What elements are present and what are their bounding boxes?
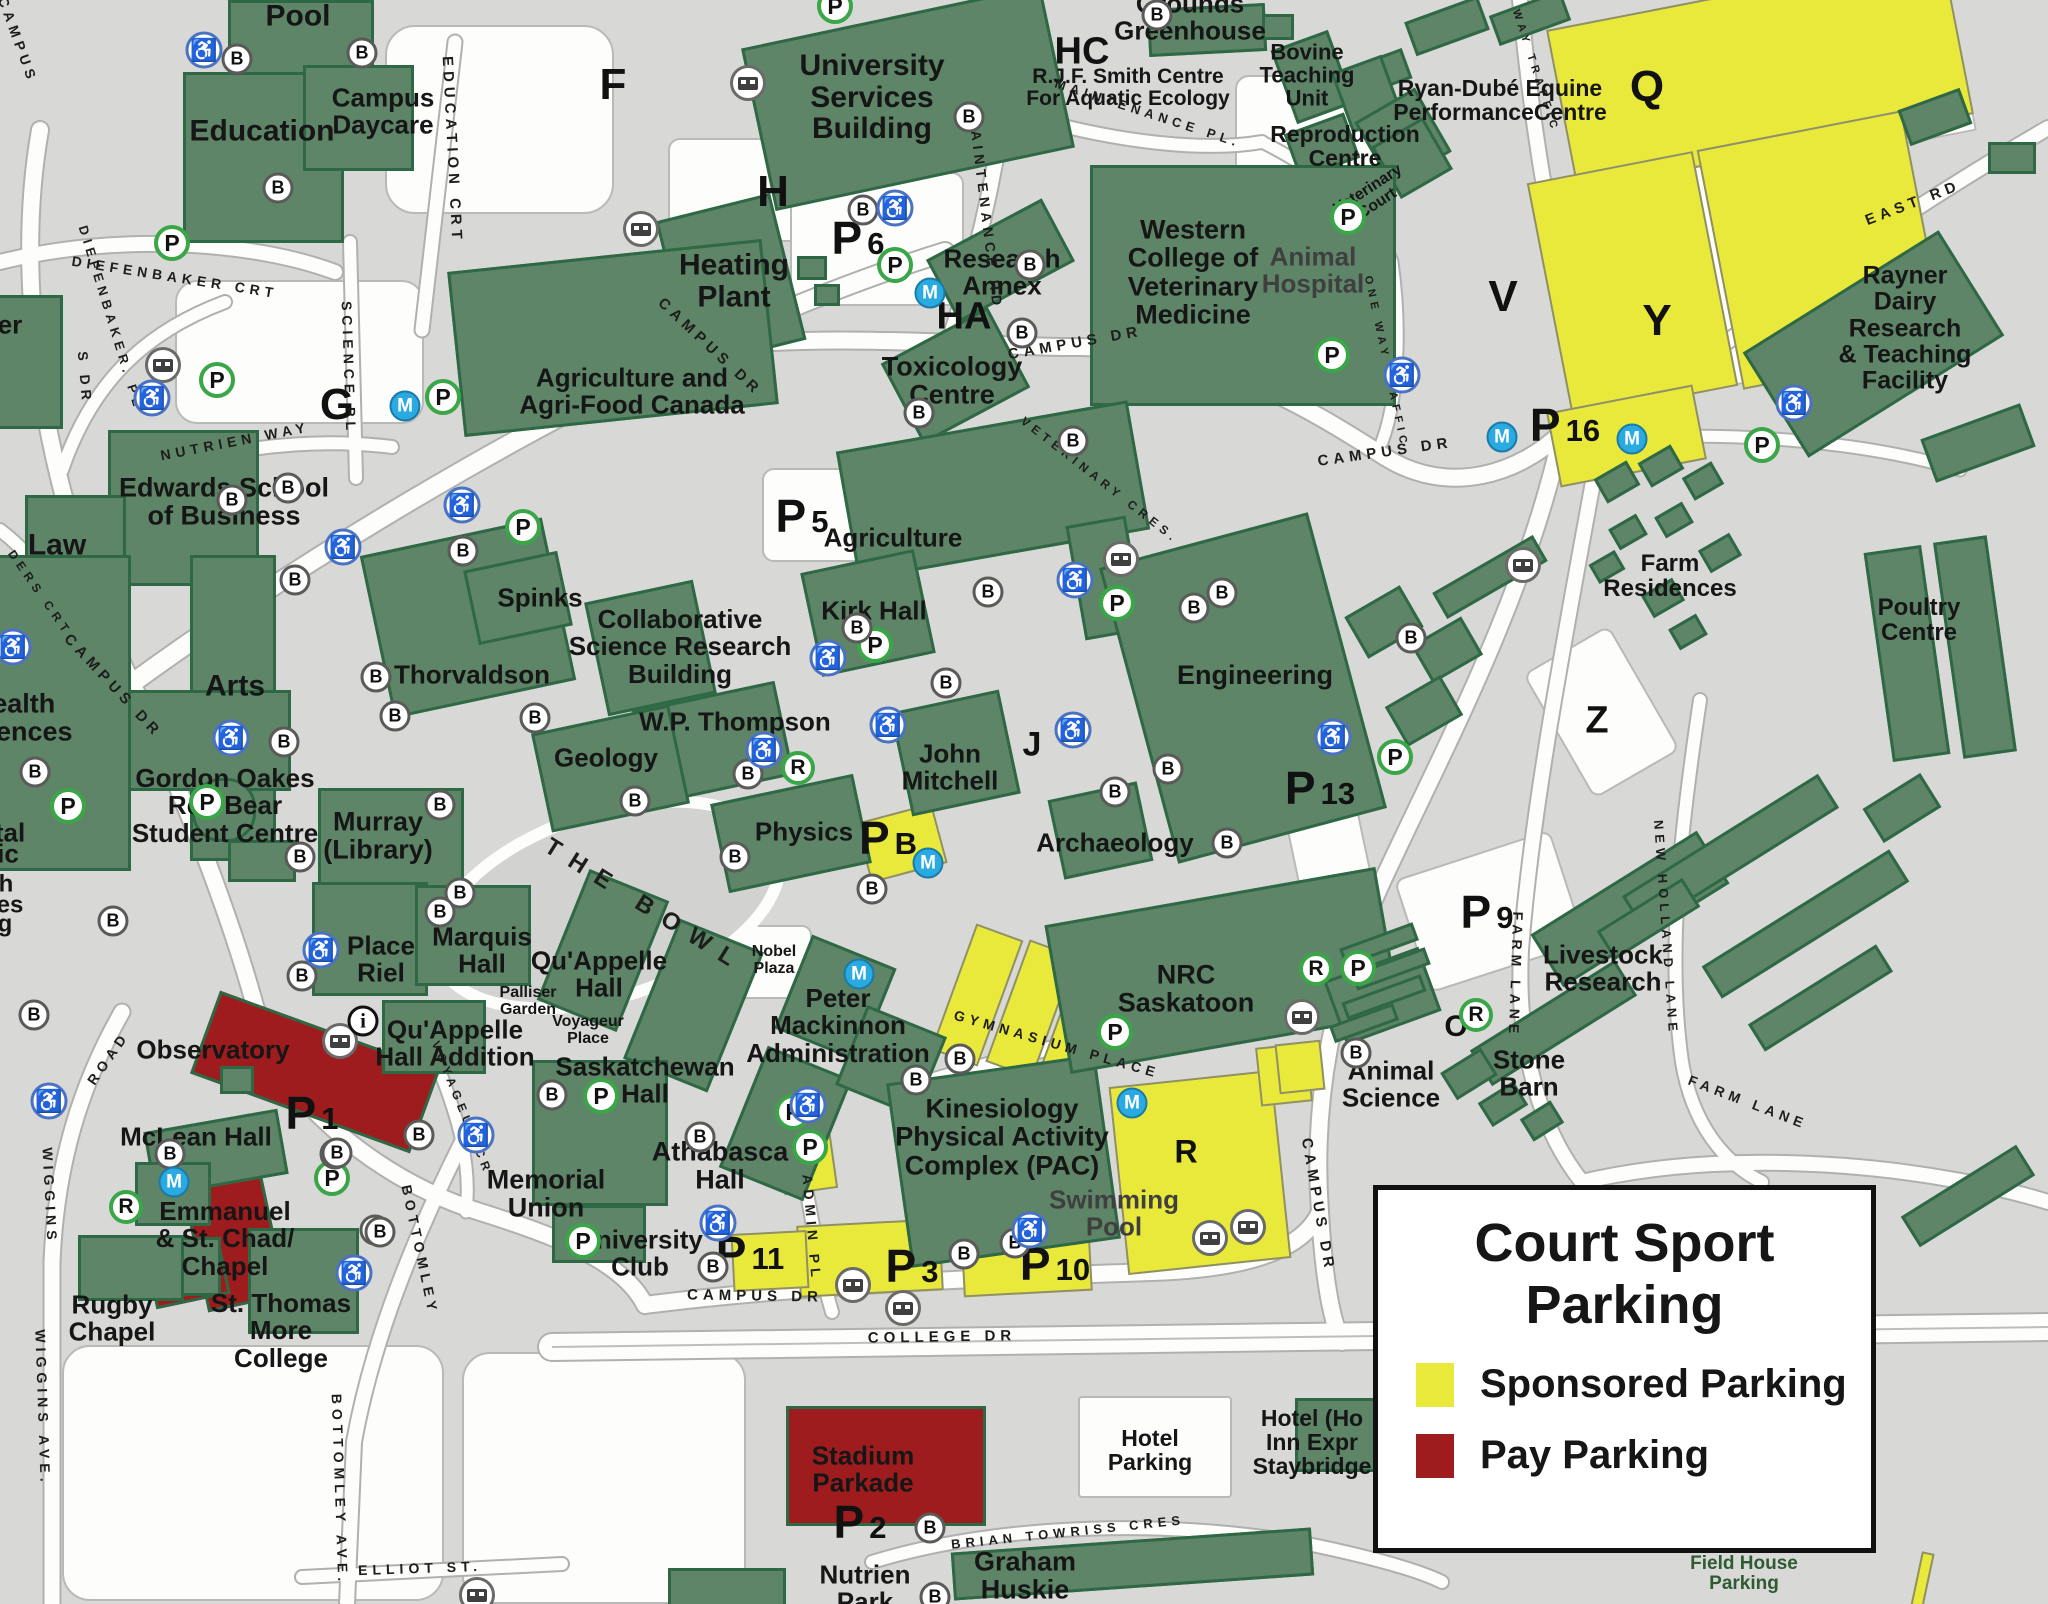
- bus-glyph: [1292, 1011, 1312, 1024]
- transit-stop-icon: M: [159, 1167, 190, 1198]
- lot-letter: H: [757, 167, 789, 217]
- accessibility-icon: ♿: [325, 529, 362, 566]
- building-label: Arts: [205, 670, 265, 702]
- parking-p: P: [286, 1087, 317, 1139]
- accessibility-icon: ♿: [213, 720, 250, 757]
- bike-rack-icon: B: [698, 1252, 729, 1283]
- building-label: Agriculture and Agri-Food Canada: [519, 365, 744, 420]
- bus-stop-icon: [1230, 1209, 1266, 1245]
- building-label: Emmanuel & St. Chad/ Chapel: [156, 1198, 295, 1280]
- bike-rack-icon: B: [720, 842, 751, 873]
- parking-icon: P: [1330, 199, 1366, 235]
- parking-p: P: [1461, 886, 1492, 938]
- bike-rack-icon: B: [404, 1120, 435, 1151]
- accessibility-icon: ♿: [31, 1083, 68, 1120]
- building-label: ic: [0, 840, 19, 867]
- lot-letter: R: [1174, 1134, 1197, 1171]
- campus-map: PoolCampus DaycareEducationUniversity Se…: [0, 0, 2048, 1604]
- bike-rack-icon: B: [1153, 754, 1184, 785]
- bike-rack-icon: B: [20, 757, 51, 788]
- building-label: Western College of Veterinary Medicine: [1128, 215, 1259, 328]
- building-label: Poultry Centre: [1878, 595, 1961, 645]
- sponsored-parking-lot: [1275, 1040, 1326, 1095]
- bus-stop-icon: [1505, 547, 1541, 583]
- parking-lot-label: P2: [834, 1495, 887, 1549]
- accessibility-icon: ♿: [303, 932, 340, 969]
- building-label: Memorial Union: [487, 1166, 606, 1223]
- lot-letter: F: [600, 60, 627, 110]
- bus-stop-icon: [145, 347, 181, 383]
- bike-rack-icon: B: [322, 1138, 353, 1169]
- road-label: COLLEGE DR: [868, 1327, 1017, 1347]
- bike-rack-icon: B: [1207, 578, 1238, 609]
- bike-rack-icon: B: [222, 44, 253, 75]
- bike-rack-icon: B: [425, 790, 456, 821]
- bus-stop-icon: [885, 1290, 921, 1326]
- lot-letter: Z: [1585, 700, 1608, 743]
- accessibility-icon: ♿: [877, 190, 914, 227]
- building-label: John Mitchell: [902, 741, 999, 796]
- bus-glyph: [467, 1589, 487, 1602]
- accessibility-icon: ♿: [444, 487, 481, 524]
- lot-letter: HA: [937, 296, 992, 339]
- parking-p: P: [859, 812, 890, 864]
- lot-letter: Q: [1630, 62, 1664, 112]
- reserved-parking-icon: R: [109, 1190, 143, 1224]
- bike-rack-icon: B: [98, 906, 129, 937]
- parking-icon: P: [1744, 427, 1780, 463]
- information-icon: i: [348, 1006, 379, 1037]
- reserved-parking-icon: R: [1299, 952, 1333, 986]
- bike-rack-icon: B: [915, 1513, 946, 1544]
- building-label: Toxicology Centre: [882, 353, 1023, 410]
- legend: Court Sport Parking Sponsored Parking Pa…: [1373, 1185, 1876, 1553]
- bike-rack-icon: B: [380, 701, 411, 732]
- parking-p: P: [886, 1240, 917, 1292]
- parking-lot-label: P1: [286, 1086, 339, 1140]
- building-label: Hotel Parking: [1108, 1426, 1192, 1474]
- bike-rack-icon: B: [949, 1239, 980, 1270]
- building-label: W.P. Thompson: [639, 708, 831, 735]
- bus-glyph: [631, 223, 651, 236]
- parking-icon: P: [189, 784, 225, 820]
- bus-glyph: [1111, 553, 1131, 566]
- building-label: Thorvaldson: [394, 661, 550, 688]
- bike-rack-icon: B: [1100, 777, 1131, 808]
- building-label: Peter Mackinnon Administration: [746, 985, 929, 1067]
- parking-icon: P: [1097, 1014, 1133, 1050]
- building-label: Saskatchewan Hall: [555, 1054, 734, 1109]
- parking-lot-number: 10: [1056, 1252, 1090, 1287]
- bike-rack-icon: B: [537, 1080, 568, 1111]
- building-label: Heating Plant: [679, 250, 789, 313]
- building: [1988, 142, 2036, 174]
- accessibility-icon: ♿: [790, 1087, 827, 1124]
- lot-letter: HC: [1055, 31, 1110, 74]
- bike-rack-icon: B: [1058, 426, 1089, 457]
- bus-stop-icon: [1284, 999, 1320, 1035]
- parking-lot-label: P5: [776, 489, 829, 543]
- building-label: Field House Parking: [1690, 1554, 1798, 1594]
- accessibility-icon: ♿: [1315, 719, 1352, 756]
- building-label: Graham Huskie: [974, 1548, 1076, 1604]
- parking-icon: P: [565, 1223, 601, 1259]
- bus-stop-icon: [835, 1267, 871, 1303]
- bike-rack-icon: B: [1341, 1038, 1372, 1069]
- building-label: Grounds Greenhouse: [1114, 0, 1266, 45]
- bike-rack-icon: B: [155, 1139, 186, 1170]
- parking-p: P: [1285, 762, 1316, 814]
- building-label: Murray (Library): [323, 808, 433, 865]
- parking-icon: P: [505, 509, 541, 545]
- accessibility-icon: ♿: [810, 640, 847, 677]
- building-label: Farm Residences: [1603, 551, 1736, 601]
- bike-rack-icon: B: [1212, 828, 1243, 859]
- building-label: Nobel Plaza: [752, 944, 796, 978]
- parking-icon: P: [792, 1129, 828, 1165]
- building-label: University Services Building: [799, 50, 944, 145]
- bike-rack-icon: B: [620, 786, 651, 817]
- building-label: Voyageur Place: [552, 1014, 624, 1048]
- parking-icon: P: [1314, 337, 1350, 373]
- building-label: Bovine Teaching Unit: [1260, 40, 1355, 109]
- parking-lot-number: 5: [811, 504, 828, 539]
- building-label: Hotel (Ho Inn Expr Staybridge: [1253, 1406, 1372, 1478]
- building-label: Law: [28, 529, 86, 561]
- building-label: Education: [189, 115, 334, 147]
- bus-stop-icon: [730, 65, 766, 101]
- building-label: Rayner Dairy Research & Teaching Facilit…: [1834, 262, 1977, 393]
- accessibility-icon: ♿: [746, 732, 783, 769]
- bike-rack-icon: B: [425, 897, 456, 928]
- building: [668, 1568, 786, 1604]
- accessibility-icon: ♿: [870, 707, 907, 744]
- bike-rack-icon: B: [931, 668, 962, 699]
- building-label: Animal Hospital: [1262, 244, 1365, 299]
- parking-icon: P: [583, 1078, 619, 1114]
- building: [814, 284, 840, 306]
- legend-item-pay: Pay Parking: [1416, 1433, 1871, 1478]
- accessibility-icon: ♿: [336, 1255, 373, 1292]
- bike-rack-icon: B: [1007, 318, 1038, 349]
- building-label: Stadium Parkade: [812, 1443, 915, 1498]
- pay-parking-swatch: [1416, 1434, 1454, 1478]
- lot-letter: J: [1023, 726, 1042, 765]
- building-label: Marquis Hall: [432, 924, 532, 979]
- building-label: Athabasca Hall: [652, 1138, 789, 1195]
- building-label: Place Riel: [347, 933, 415, 988]
- building-label: Swimming Pool: [1049, 1187, 1179, 1242]
- building-label: McLean Hall: [120, 1123, 272, 1150]
- parking-lot-number: 16: [1566, 413, 1600, 448]
- bike-rack-icon: B: [945, 1044, 976, 1075]
- pay-parking-label: Pay Parking: [1480, 1433, 1709, 1478]
- lot-letter: V: [1488, 272, 1517, 322]
- parking-icon: P: [50, 788, 86, 824]
- building-label: Stone Barn: [1493, 1047, 1565, 1102]
- building-label: Kinesiology Physical Activity Complex (P…: [895, 1094, 1109, 1179]
- accessibility-icon: ♿: [1384, 357, 1421, 394]
- parking-lot-number: 1: [321, 1101, 338, 1136]
- parking-lot-label: P9: [1461, 885, 1514, 939]
- building-label: Archaeology: [1036, 829, 1194, 856]
- transit-stop-icon: M: [390, 391, 421, 422]
- sponsored-parking-label: Sponsored Parking: [1480, 1362, 1847, 1407]
- building-label: NRC Saskatoon: [1118, 961, 1255, 1018]
- building-label: Qu'Appelle Hall Addition: [375, 1017, 534, 1072]
- accessibility-icon: ♿: [1776, 385, 1813, 422]
- bus-glyph: [153, 359, 173, 372]
- parking-lot-label: P13: [1285, 761, 1355, 815]
- sponsored-parking-swatch: [1416, 1363, 1454, 1407]
- bus-stop-icon: [1192, 1220, 1228, 1256]
- building: [1262, 14, 1294, 40]
- transit-stop-icon: M: [1117, 1088, 1148, 1119]
- accessibility-icon: ♿: [700, 1205, 737, 1242]
- parking-p: P: [776, 490, 807, 542]
- bike-rack-icon: B: [285, 842, 316, 873]
- parking-lot-label: PB: [859, 811, 917, 865]
- building-label: Ryan-Dubé Equine PerformanceCentre: [1393, 76, 1606, 124]
- parking-lot-number: 11: [751, 1241, 784, 1276]
- transit-stop-icon: M: [844, 959, 875, 990]
- bus-glyph: [843, 1279, 863, 1292]
- bike-rack-icon: B: [901, 1065, 932, 1096]
- accessibility-icon: ♿: [1055, 712, 1092, 749]
- bike-rack-icon: B: [685, 1122, 716, 1153]
- bike-rack-icon: B: [448, 536, 479, 567]
- bus-glyph: [330, 1035, 350, 1048]
- building: [797, 256, 827, 280]
- bike-rack-icon: B: [269, 727, 300, 758]
- parking-lot-number: 3: [921, 1254, 938, 1289]
- bike-rack-icon: B: [361, 662, 392, 693]
- building-label: St. Thomas More College: [211, 1290, 351, 1372]
- bike-rack-icon: B: [217, 485, 248, 516]
- reserved-parking-icon: R: [781, 751, 815, 785]
- bike-rack-icon: B: [973, 577, 1004, 608]
- bike-rack-icon: B: [1179, 593, 1210, 624]
- building-label: Campus Daycare: [332, 85, 435, 140]
- parking-icon: P: [1340, 950, 1376, 986]
- bike-rack-icon: B: [842, 613, 873, 644]
- parking-lot-label: P16: [1530, 398, 1600, 452]
- lot-letter: Y: [1642, 296, 1671, 346]
- bike-rack-icon: B: [365, 1217, 396, 1248]
- bike-rack-icon: B: [273, 473, 304, 504]
- building-label: Health Sciences: [0, 690, 73, 747]
- bus-stop-icon: [623, 211, 659, 247]
- parking-icon: P: [1377, 739, 1413, 775]
- bike-rack-icon: B: [1015, 250, 1046, 281]
- bike-rack-icon: B: [954, 102, 985, 133]
- bike-rack-icon: B: [857, 874, 888, 905]
- legend-item-sponsored: Sponsored Parking: [1416, 1362, 1871, 1407]
- transit-stop-icon: M: [913, 848, 944, 879]
- reserved-parking-icon: R: [1459, 998, 1493, 1032]
- building-label: Rugby Chapel: [69, 1292, 156, 1347]
- building-label: Engineering: [1177, 661, 1333, 689]
- accessibility-icon: ♿: [458, 1117, 495, 1154]
- parking-p: P: [1530, 399, 1561, 451]
- accessibility-icon: ♿: [1057, 562, 1094, 599]
- parking-icon: P: [1099, 585, 1135, 621]
- parking-icon: P: [154, 225, 190, 261]
- parking-icon: P: [877, 247, 913, 283]
- road-label: CAMPUS DR: [687, 1286, 823, 1305]
- building: [220, 1066, 254, 1094]
- legend-title: Court Sport Parking: [1378, 1212, 1871, 1336]
- building-label: Physics: [755, 818, 853, 845]
- accessibility-icon: ♿: [186, 32, 223, 69]
- bus-glyph: [738, 77, 758, 90]
- parking-icon: P: [199, 362, 235, 398]
- bike-rack-icon: B: [1396, 623, 1427, 654]
- parking-lot-number: 13: [1321, 776, 1355, 811]
- bike-rack-icon: B: [280, 565, 311, 596]
- bus-glyph: [1238, 1221, 1258, 1234]
- transit-stop-icon: M: [1617, 424, 1648, 455]
- bike-rack-icon: B: [19, 1000, 50, 1031]
- bus-stop-icon: [1103, 541, 1139, 577]
- building-label: Kirk Hall: [821, 597, 927, 624]
- building-label: Pool: [266, 0, 331, 32]
- bike-rack-icon: B: [263, 173, 294, 204]
- parking-icon: P: [425, 379, 461, 415]
- building-label: Livestock Research: [1543, 942, 1663, 997]
- bike-rack-icon: B: [848, 195, 879, 226]
- bike-rack-icon: B: [347, 38, 378, 69]
- building-label: Observatory: [136, 1036, 289, 1063]
- parking-lot-label: P3: [886, 1239, 939, 1293]
- bus-glyph: [1200, 1232, 1220, 1245]
- bus-glyph: [1513, 559, 1533, 572]
- accessibility-icon: ♿: [134, 380, 171, 417]
- bike-rack-icon: B: [520, 703, 551, 734]
- accessibility-icon: ♿: [1012, 1212, 1049, 1249]
- bike-rack-icon: B: [1142, 0, 1173, 31]
- building-label: g: [0, 911, 12, 936]
- parking-lot-number: 2: [869, 1510, 886, 1545]
- building-label: Agriculture: [824, 524, 963, 551]
- building-label: Nutrien Park: [820, 1562, 911, 1604]
- transit-stop-icon: M: [915, 278, 946, 309]
- bus-glyph: [893, 1302, 913, 1315]
- bike-rack-icon: B: [904, 398, 935, 429]
- building-label: er: [0, 311, 22, 338]
- parking-p: P: [834, 1496, 865, 1548]
- building-label: Gordon Oakes Red Bear Student Centre: [132, 765, 318, 847]
- building-label: Collaborative Science Research Building: [569, 606, 792, 688]
- building-label: Geology: [554, 744, 658, 771]
- transit-stop-icon: M: [1487, 422, 1518, 453]
